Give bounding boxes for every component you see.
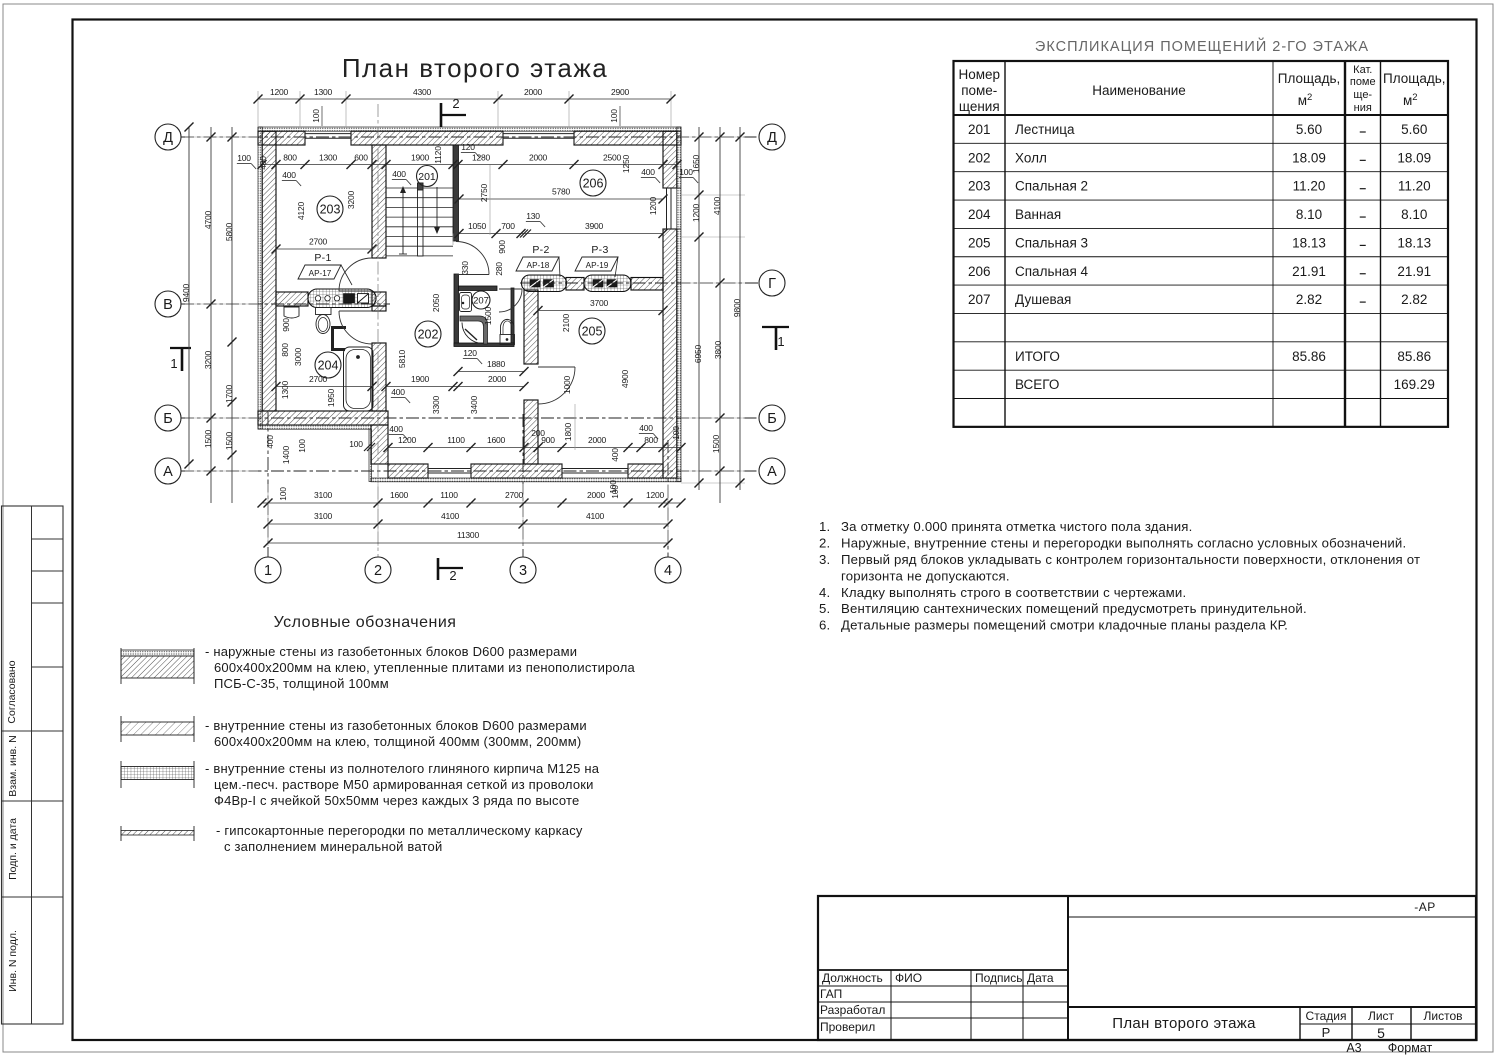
svg-text:ПСБ-С-35, толщиной 100мм: ПСБ-С-35, толщиной 100мм (214, 676, 389, 691)
svg-text:Спальная 4: Спальная 4 (1015, 264, 1089, 279)
svg-text:1300: 1300 (319, 153, 338, 163)
svg-text:Дата: Дата (1027, 971, 1054, 985)
svg-text:1: 1 (264, 563, 272, 579)
svg-text:1700: 1700 (224, 384, 234, 403)
svg-text:Ванная: Ванная (1015, 207, 1061, 222)
svg-text:1500: 1500 (203, 429, 213, 448)
svg-text:3100: 3100 (314, 490, 333, 500)
svg-text:2000: 2000 (524, 87, 543, 97)
svg-text:3300: 3300 (431, 395, 441, 414)
svg-text:206: 206 (583, 177, 604, 191)
svg-text:330: 330 (460, 261, 470, 275)
svg-text:Вентиляцию сантехнических поме: Вентиляцию сантехнических помещений пред… (841, 601, 1307, 616)
svg-text:3400: 3400 (469, 395, 479, 414)
svg-text:207: 207 (968, 292, 991, 307)
svg-text:400: 400 (639, 423, 653, 433)
svg-text:5.60: 5.60 (1401, 122, 1427, 137)
svg-text:100: 100 (297, 439, 307, 453)
svg-text:Условные обозначения: Условные обозначения (274, 614, 457, 631)
svg-text:85.86: 85.86 (1397, 349, 1431, 364)
svg-text:2: 2 (449, 568, 456, 583)
svg-text:400: 400 (392, 169, 406, 179)
svg-text:120: 120 (463, 348, 477, 358)
svg-text:2: 2 (452, 96, 459, 111)
svg-text:с заполнением минеральной вато: с заполнением минеральной ватой (224, 839, 442, 854)
svg-text:2000: 2000 (587, 490, 606, 500)
svg-text:1250: 1250 (621, 154, 631, 173)
svg-text:1280: 1280 (472, 153, 491, 163)
svg-text:Б: Б (767, 411, 777, 427)
svg-text:203: 203 (320, 203, 341, 217)
svg-text:11.20: 11.20 (1293, 179, 1326, 194)
svg-text:1880: 1880 (487, 359, 506, 369)
svg-text:Лист: Лист (1368, 1009, 1395, 1023)
svg-text:Р-3: Р-3 (591, 244, 608, 256)
svg-text:Площадь,: Площадь, (1383, 71, 1446, 86)
svg-text:поме: поме (1350, 76, 1376, 88)
svg-text:Ф4Вр-I с ячейкой 50х50мм через: Ф4Вр-I с ячейкой 50х50мм через каждых 3 … (214, 793, 579, 808)
svg-text:Наружные, внутренние стены и п: Наружные, внутренние стены и перегородки… (841, 536, 1406, 551)
svg-text:205: 205 (968, 235, 991, 250)
svg-text:800: 800 (283, 153, 297, 163)
svg-text:5.: 5. (819, 601, 830, 616)
svg-text:1120: 1120 (433, 146, 443, 164)
svg-text:4300: 4300 (413, 87, 432, 97)
svg-text:Подп. и дата: Подп. и дата (7, 818, 19, 880)
svg-text:Спальная 2: Спальная 2 (1015, 179, 1088, 194)
svg-text:1200: 1200 (646, 490, 665, 500)
svg-text:- внутренние стены из газобето: - внутренние стены из газобетонных блоко… (205, 718, 587, 733)
svg-text:щения: щения (959, 99, 1000, 114)
svg-text:700: 700 (501, 221, 515, 231)
svg-text:1200: 1200 (691, 203, 701, 222)
svg-text:1650: 1650 (691, 154, 701, 173)
svg-text:5780: 5780 (552, 187, 571, 197)
svg-text:1300: 1300 (314, 87, 333, 97)
svg-text:Проверил: Проверил (820, 1020, 875, 1034)
svg-text:400: 400 (258, 156, 268, 170)
svg-text:Холл: Холл (1015, 150, 1047, 165)
svg-text:5: 5 (1377, 1025, 1385, 1041)
svg-text:1900: 1900 (411, 374, 430, 384)
svg-text:100: 100 (278, 487, 288, 501)
svg-text:11300: 11300 (457, 530, 479, 540)
svg-text:8.10: 8.10 (1296, 207, 1322, 222)
svg-text:Кат.: Кат. (1353, 64, 1372, 76)
svg-text:1200: 1200 (648, 196, 658, 215)
svg-text:204: 204 (318, 359, 339, 373)
svg-text:1400: 1400 (281, 445, 291, 464)
svg-text:3800: 3800 (713, 340, 723, 359)
svg-text:1.: 1. (819, 519, 830, 534)
svg-text:Листов: Листов (1424, 1009, 1463, 1023)
svg-text:800: 800 (280, 343, 290, 357)
svg-text:100: 100 (349, 439, 363, 449)
svg-text:1500: 1500 (224, 431, 234, 450)
svg-text:3.: 3. (819, 552, 830, 567)
svg-text:400: 400 (265, 435, 275, 449)
svg-text:600х400х200мм на клею, толщин: 600х400х200мм на клею, толщиной 400мм (3… (214, 734, 581, 749)
svg-text:Номер: Номер (958, 67, 1000, 82)
svg-text:204: 204 (968, 207, 991, 222)
svg-text:2: 2 (374, 563, 382, 579)
svg-text:400: 400 (610, 448, 620, 462)
svg-text:600: 600 (354, 153, 368, 163)
svg-text:Площадь,: Площадь, (1278, 71, 1341, 86)
svg-text:1000: 1000 (562, 375, 572, 394)
svg-text:Подпись: Подпись (975, 971, 1023, 985)
svg-text:1600: 1600 (390, 490, 409, 500)
svg-text:9400: 9400 (181, 283, 191, 302)
svg-text:Р-2: Р-2 (532, 244, 549, 256)
svg-text:2100: 2100 (561, 313, 571, 332)
svg-text:1900: 1900 (411, 153, 430, 163)
svg-text:Стадия: Стадия (1306, 1009, 1347, 1023)
svg-text:5810: 5810 (397, 349, 407, 368)
svg-text:2700: 2700 (309, 237, 328, 247)
svg-text:1800: 1800 (563, 422, 573, 441)
svg-text:ЭКСПЛИКАЦИЯ ПОМЕЩЕНИЙ 2-ГО: ЭКСПЛИКАЦИЯ ПОМЕЩЕНИЙ 2-ГО ЭТАЖА (1035, 37, 1369, 55)
svg-text:ще-: ще- (1353, 89, 1372, 101)
svg-text:1950: 1950 (326, 388, 336, 407)
svg-text:2.82: 2.82 (1401, 292, 1427, 307)
svg-text:203: 203 (968, 179, 991, 194)
svg-text:18.09: 18.09 (1397, 150, 1431, 165)
svg-text:Детальные размеры помещений см: Детальные размеры помещений смотри кладо… (841, 618, 1288, 633)
svg-text:цем.-песч. растворе М50 армиро: цем.-песч. растворе М50 армированная сет… (214, 777, 594, 792)
svg-text:Р: Р (1322, 1025, 1331, 1040)
svg-text:Разработал: Разработал (820, 1003, 885, 1017)
svg-text:900: 900 (281, 318, 291, 332)
svg-text:- внутренние стены из полнотел: - внутренние стены из полнотелого глинян… (205, 761, 600, 776)
svg-text:1200: 1200 (398, 435, 417, 445)
svg-text:План второго этажа: План второго этажа (342, 53, 608, 83)
svg-text:202: 202 (418, 328, 439, 342)
svg-text:Взам. инв. N: Взам. инв. N (7, 735, 19, 796)
svg-text:Г: Г (768, 276, 776, 292)
svg-text:8.10: 8.10 (1401, 207, 1427, 222)
svg-text:-АР: -АР (1414, 900, 1436, 914)
svg-text:1050: 1050 (468, 221, 487, 231)
svg-text:Б: Б (163, 411, 173, 427)
svg-text:200: 200 (531, 428, 545, 438)
svg-text:Д: Д (767, 130, 777, 146)
svg-text:Кладку выполнять строго в соот: Кладку выполнять строго в соответствии с… (841, 585, 1186, 600)
svg-text:4.: 4. (819, 585, 830, 600)
svg-text:Душевая: Душевая (1015, 292, 1071, 307)
svg-text:21.91: 21.91 (1397, 264, 1431, 279)
svg-text:100: 100 (311, 109, 321, 123)
svg-text:Р-1: Р-1 (314, 252, 331, 264)
svg-text:ГАП: ГАП (820, 987, 842, 1001)
svg-text:5800: 5800 (224, 222, 234, 241)
svg-text:3: 3 (519, 563, 527, 579)
svg-text:100: 100 (671, 426, 681, 440)
svg-text:600х400х200мм на клею, утепле: 600х400х200мм на клею, утепленные плитам… (214, 660, 635, 675)
svg-text:- гипсокартонные перегородки п: - гипсокартонные перегородки по металлич… (216, 823, 583, 838)
svg-text:3700: 3700 (590, 298, 609, 308)
svg-text:Инв. N подл.: Инв. N подл. (7, 930, 19, 992)
svg-text:120: 120 (461, 142, 475, 152)
svg-text:2900: 2900 (611, 87, 630, 97)
svg-text:2000: 2000 (588, 435, 607, 445)
svg-text:202: 202 (968, 150, 991, 165)
svg-text:горизонта не допускаются.: горизонта не допускаются. (841, 569, 1010, 584)
svg-text:18.13: 18.13 (1397, 235, 1431, 250)
svg-text:3200: 3200 (346, 190, 356, 209)
svg-text:А: А (767, 464, 777, 480)
svg-text:4100: 4100 (712, 196, 722, 215)
svg-text:За отметку 0.000 принята отмет: За отметку 0.000 принята отметка чистого… (841, 519, 1192, 534)
svg-text:1: 1 (170, 356, 177, 371)
svg-text:Наименование: Наименование (1092, 83, 1186, 98)
svg-text:Формат: Формат (1388, 1041, 1433, 1055)
svg-text:В: В (163, 297, 173, 313)
svg-text:2.: 2. (819, 536, 830, 551)
svg-text:18.13: 18.13 (1292, 235, 1326, 250)
svg-text:4: 4 (664, 563, 672, 579)
svg-text:АР-18: АР-18 (527, 261, 550, 270)
svg-text:207: 207 (473, 295, 489, 306)
svg-text:Первый ряд блоков укладывать с: Первый ряд блоков укладывать с контролем… (841, 552, 1420, 567)
svg-text:Д: Д (163, 130, 173, 146)
svg-text:1500: 1500 (711, 434, 721, 453)
svg-text:Согласовано: Согласовано (6, 660, 18, 723)
svg-text:1500: 1500 (483, 306, 493, 325)
svg-text:А3: А3 (1346, 1041, 1361, 1055)
svg-text:2700: 2700 (505, 490, 524, 500)
svg-text:4700: 4700 (203, 210, 213, 229)
svg-text:100: 100 (608, 480, 618, 494)
svg-text:ВСЕГО: ВСЕГО (1015, 377, 1059, 392)
svg-text:9800: 9800 (732, 298, 742, 317)
svg-text:Лестница: Лестница (1015, 122, 1075, 137)
svg-text:2.82: 2.82 (1296, 292, 1322, 307)
svg-text:2000: 2000 (529, 153, 548, 163)
svg-text:1600: 1600 (487, 435, 506, 445)
svg-text:4100: 4100 (586, 511, 605, 521)
svg-text:4900: 4900 (620, 369, 630, 388)
svg-text:ния: ния (1354, 102, 1372, 114)
svg-text:- наружные стены из газобетонн: - наружные стены из газобетонных блоков … (205, 644, 577, 659)
svg-text:4100: 4100 (441, 511, 460, 521)
svg-text:205: 205 (582, 325, 603, 339)
svg-text:2000: 2000 (488, 374, 507, 384)
svg-text:АР-17: АР-17 (309, 269, 332, 278)
svg-text:ИТОГО: ИТОГО (1015, 349, 1060, 364)
svg-text:6.: 6. (819, 618, 830, 633)
svg-text:Должность: Должность (822, 971, 883, 985)
svg-text:169.29: 169.29 (1394, 377, 1435, 392)
svg-text:100: 100 (609, 109, 619, 123)
svg-text:85.86: 85.86 (1292, 349, 1326, 364)
svg-text:201: 201 (968, 122, 991, 137)
svg-text:ФИО: ФИО (895, 971, 922, 985)
svg-text:АР-19: АР-19 (586, 261, 609, 270)
svg-text:6950: 6950 (693, 344, 703, 363)
svg-text:Спальная 3: Спальная 3 (1015, 235, 1088, 250)
svg-text:2050: 2050 (431, 293, 441, 312)
svg-text:4120: 4120 (296, 201, 306, 220)
svg-text:18.09: 18.09 (1292, 150, 1326, 165)
svg-text:280: 280 (494, 262, 504, 276)
svg-text:400: 400 (641, 167, 655, 177)
svg-text:100: 100 (237, 153, 251, 163)
svg-text:поме-: поме- (961, 83, 997, 98)
svg-text:1100: 1100 (440, 490, 458, 500)
svg-text:130: 130 (526, 211, 540, 221)
svg-text:5.60: 5.60 (1296, 122, 1322, 137)
svg-text:11.20: 11.20 (1398, 179, 1431, 194)
svg-text:1100: 1100 (447, 435, 465, 445)
svg-text:400: 400 (391, 387, 405, 397)
svg-text:1: 1 (777, 334, 784, 349)
svg-text:206: 206 (968, 264, 991, 279)
svg-text:400: 400 (282, 170, 296, 180)
svg-text:900: 900 (497, 240, 507, 254)
svg-text:2500: 2500 (603, 153, 622, 163)
svg-text:1200: 1200 (270, 87, 289, 97)
svg-text:3000: 3000 (293, 347, 303, 366)
svg-text:2700: 2700 (309, 374, 328, 384)
svg-text:3100: 3100 (314, 511, 333, 521)
svg-text:201: 201 (418, 171, 436, 183)
svg-text:План второго этажа: План второго этажа (1112, 1015, 1256, 1032)
svg-text:3200: 3200 (203, 350, 213, 369)
svg-text:21.91: 21.91 (1292, 264, 1326, 279)
svg-text:2750: 2750 (479, 183, 489, 202)
svg-text:1300: 1300 (280, 380, 290, 399)
svg-text:3900: 3900 (585, 221, 604, 231)
svg-text:А: А (163, 464, 173, 480)
svg-text:400: 400 (389, 424, 403, 434)
